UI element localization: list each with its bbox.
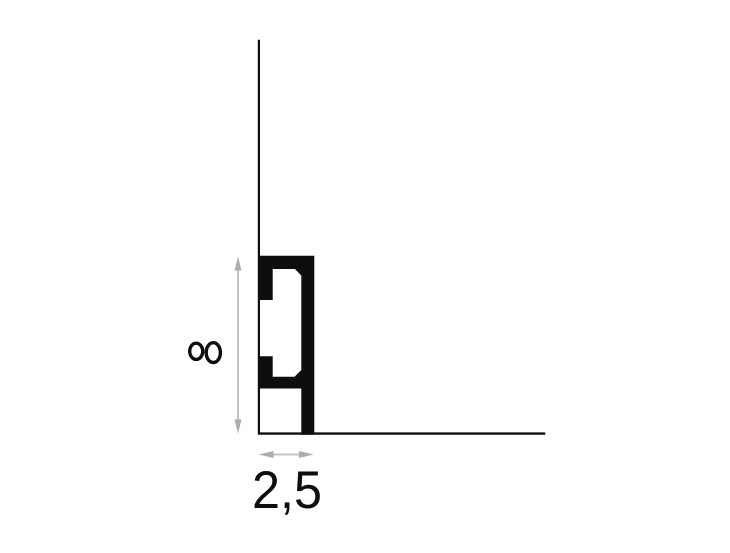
svg-text:2,5: 2,5 — [252, 461, 322, 520]
